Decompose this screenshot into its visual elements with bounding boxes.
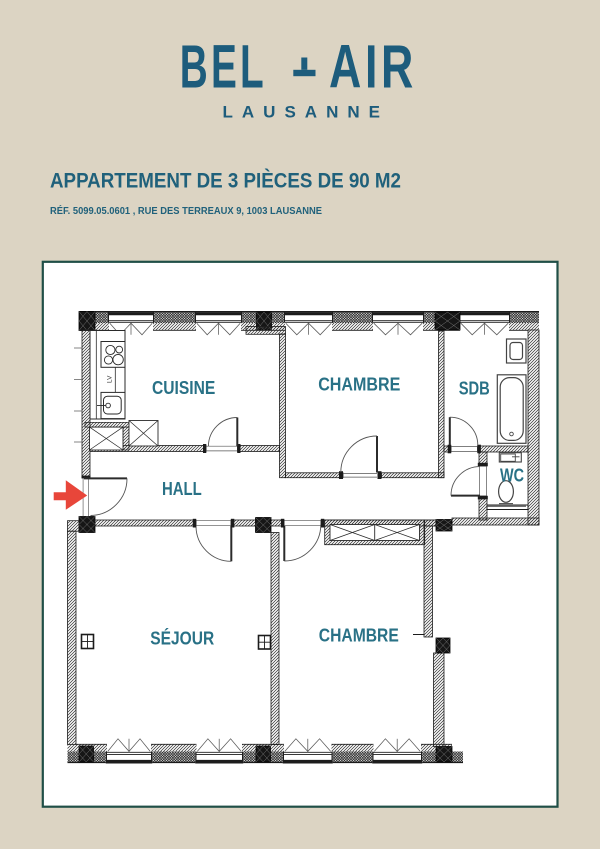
svg-text:AIR: AIR [329, 33, 417, 102]
svg-text:RÉF. 5099.05.0601 , RUE DES TE: RÉF. 5099.05.0601 , RUE DES TERREAUX 9, … [50, 205, 322, 217]
svg-text:HALL: HALL [162, 479, 202, 499]
svg-text:WC: WC [500, 466, 524, 486]
svg-text:SÉJOUR: SÉJOUR [150, 628, 214, 649]
svg-text:SDB: SDB [459, 379, 490, 399]
svg-text:BEL: BEL [180, 33, 267, 102]
svg-text:CHAMBRE: CHAMBRE [319, 626, 399, 646]
svg-text:APPARTEMENT DE 3 PIÈCES DE 90: APPARTEMENT DE 3 PIÈCES DE 90 M2 [50, 170, 401, 193]
svg-text:LV: LV [107, 375, 114, 383]
svg-text:CHAMBRE: CHAMBRE [318, 375, 400, 395]
svg-text:CUISINE: CUISINE [152, 378, 215, 398]
